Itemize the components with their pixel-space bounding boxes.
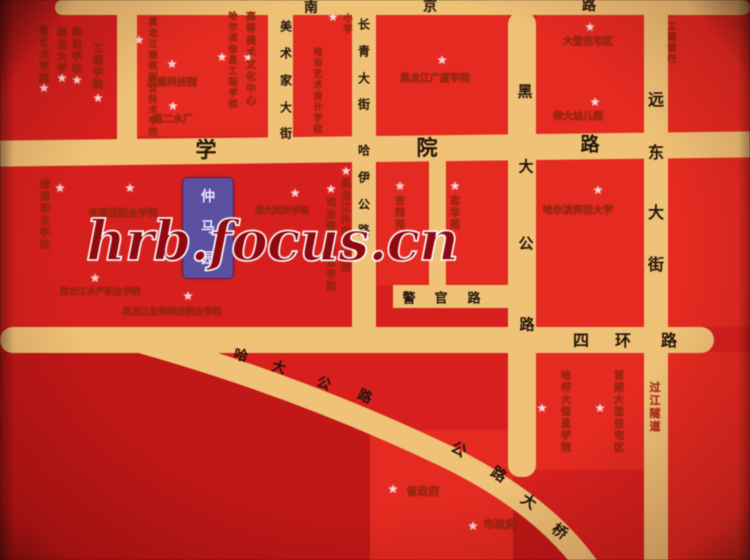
landmark-label: 大型住宅区: [563, 33, 613, 48]
landmark-label: 黑龙江水产职业学院: [59, 285, 140, 298]
landmark-label: 工商银行: [667, 22, 678, 66]
star-icon: ★: [395, 179, 406, 193]
landmark-label: 省艺术学院: [38, 26, 50, 86]
landmark-label: 哈师大恒星学院: [560, 371, 572, 455]
road-label-char: 街: [280, 125, 292, 142]
star-icon: ★: [290, 186, 301, 200]
star-icon: ★: [450, 179, 461, 193]
road-label-char: 大: [280, 99, 292, 116]
road-vertical-west: [117, 10, 137, 140]
landmark-label: 小学: [343, 14, 354, 36]
landmark-label: 第二水厂: [153, 111, 193, 126]
landmark-label: 首期大型住宅区: [613, 371, 625, 455]
star-icon: ★: [388, 482, 399, 496]
star-icon: ★: [468, 519, 479, 533]
road-label-char: 东: [648, 139, 664, 163]
road-label-char: 街: [648, 251, 664, 275]
map-canvas: 仲 马 园 ★★★★★★★★★★★★★★★★★★★★★★★★★★★南京路学院路美…: [0, 0, 750, 560]
road-label-char: 南: [304, 0, 318, 17]
star-icon: ★: [595, 401, 606, 415]
star-icon: ★: [125, 181, 136, 195]
road-label-char: 环: [615, 327, 631, 351]
landmark-label: 商业大学: [56, 28, 68, 76]
road-label-char: 家: [280, 72, 292, 89]
road-network: [0, 0, 750, 560]
road-label-char: 大: [358, 70, 370, 87]
road-label-char: 青: [358, 43, 370, 60]
star-icon: ★: [217, 50, 228, 64]
road-label-char: 院: [417, 132, 438, 162]
landmark-label: 工程学院: [92, 44, 104, 92]
road-label-char: 大: [648, 199, 664, 223]
road-label-char: 长: [358, 16, 370, 33]
landmark-label: 过江隧道: [649, 381, 662, 433]
road-label-char: 官: [434, 288, 447, 307]
landmark-label: 哈尔滨信息工程学院: [228, 12, 239, 111]
road-label-char: 术: [280, 45, 292, 62]
road-label-char: 伊: [358, 169, 370, 186]
landmark-label: 哈市艺术设计学校: [313, 48, 324, 136]
landmark-label: 凤凰科技园: [147, 74, 197, 89]
watermark: hrb.focus.cn: [86, 208, 458, 273]
star-icon: ★: [593, 183, 604, 197]
star-icon: ★: [326, 182, 337, 196]
road-label-char: 路: [580, 130, 599, 157]
landmark-label: 哈尔滨师范大学: [543, 202, 613, 217]
star-icon: ★: [55, 181, 66, 195]
road-label-char: 警: [402, 288, 415, 307]
star-icon: ★: [328, 10, 339, 24]
star-icon: ★: [90, 271, 101, 285]
landmark-label: 市政府: [484, 516, 517, 532]
landmark-label: 绿博职业学校: [39, 180, 51, 252]
landmark-label: 黑龙江广厦学院: [400, 70, 470, 85]
landmark-label: 黑龙江生物科技职业学院: [122, 305, 221, 318]
star-icon: ★: [437, 53, 448, 67]
road-label-char: 路: [519, 314, 534, 335]
star-icon: ★: [183, 289, 194, 303]
road-label-char: 路: [661, 327, 677, 351]
star-icon: ★: [93, 91, 104, 105]
landmark-label: 师大幼儿园: [553, 108, 603, 123]
star-icon: ★: [341, 164, 352, 178]
landmark-label: 省政府: [407, 483, 440, 499]
road-label-char: 京: [423, 0, 437, 16]
road-label-char: 远: [648, 86, 664, 110]
star-icon: ★: [167, 57, 178, 71]
road-label-char: 路: [582, 0, 596, 15]
road-label-char: 四: [573, 327, 589, 351]
road-label-char: 哈: [358, 142, 370, 159]
landmark-label: 高等美术文化中心: [245, 12, 257, 108]
road-label-char: 大: [518, 156, 533, 177]
road-label-char: 路: [467, 288, 480, 307]
road-label-char: 黑: [517, 81, 532, 102]
road-label-char: 公: [518, 233, 533, 254]
road-label-char: 美: [280, 18, 292, 35]
road-yuandong-dajie: [644, 0, 668, 560]
star-icon: ★: [134, 33, 145, 47]
landmark-label: 师范学校: [71, 28, 83, 76]
map-root: 仲 马 园 ★★★★★★★★★★★★★★★★★★★★★★★★★★★南京路学院路美…: [0, 0, 750, 560]
star-icon: ★: [537, 401, 548, 415]
road-label-char: 学: [196, 134, 217, 164]
road-label-char: 街: [358, 96, 370, 113]
